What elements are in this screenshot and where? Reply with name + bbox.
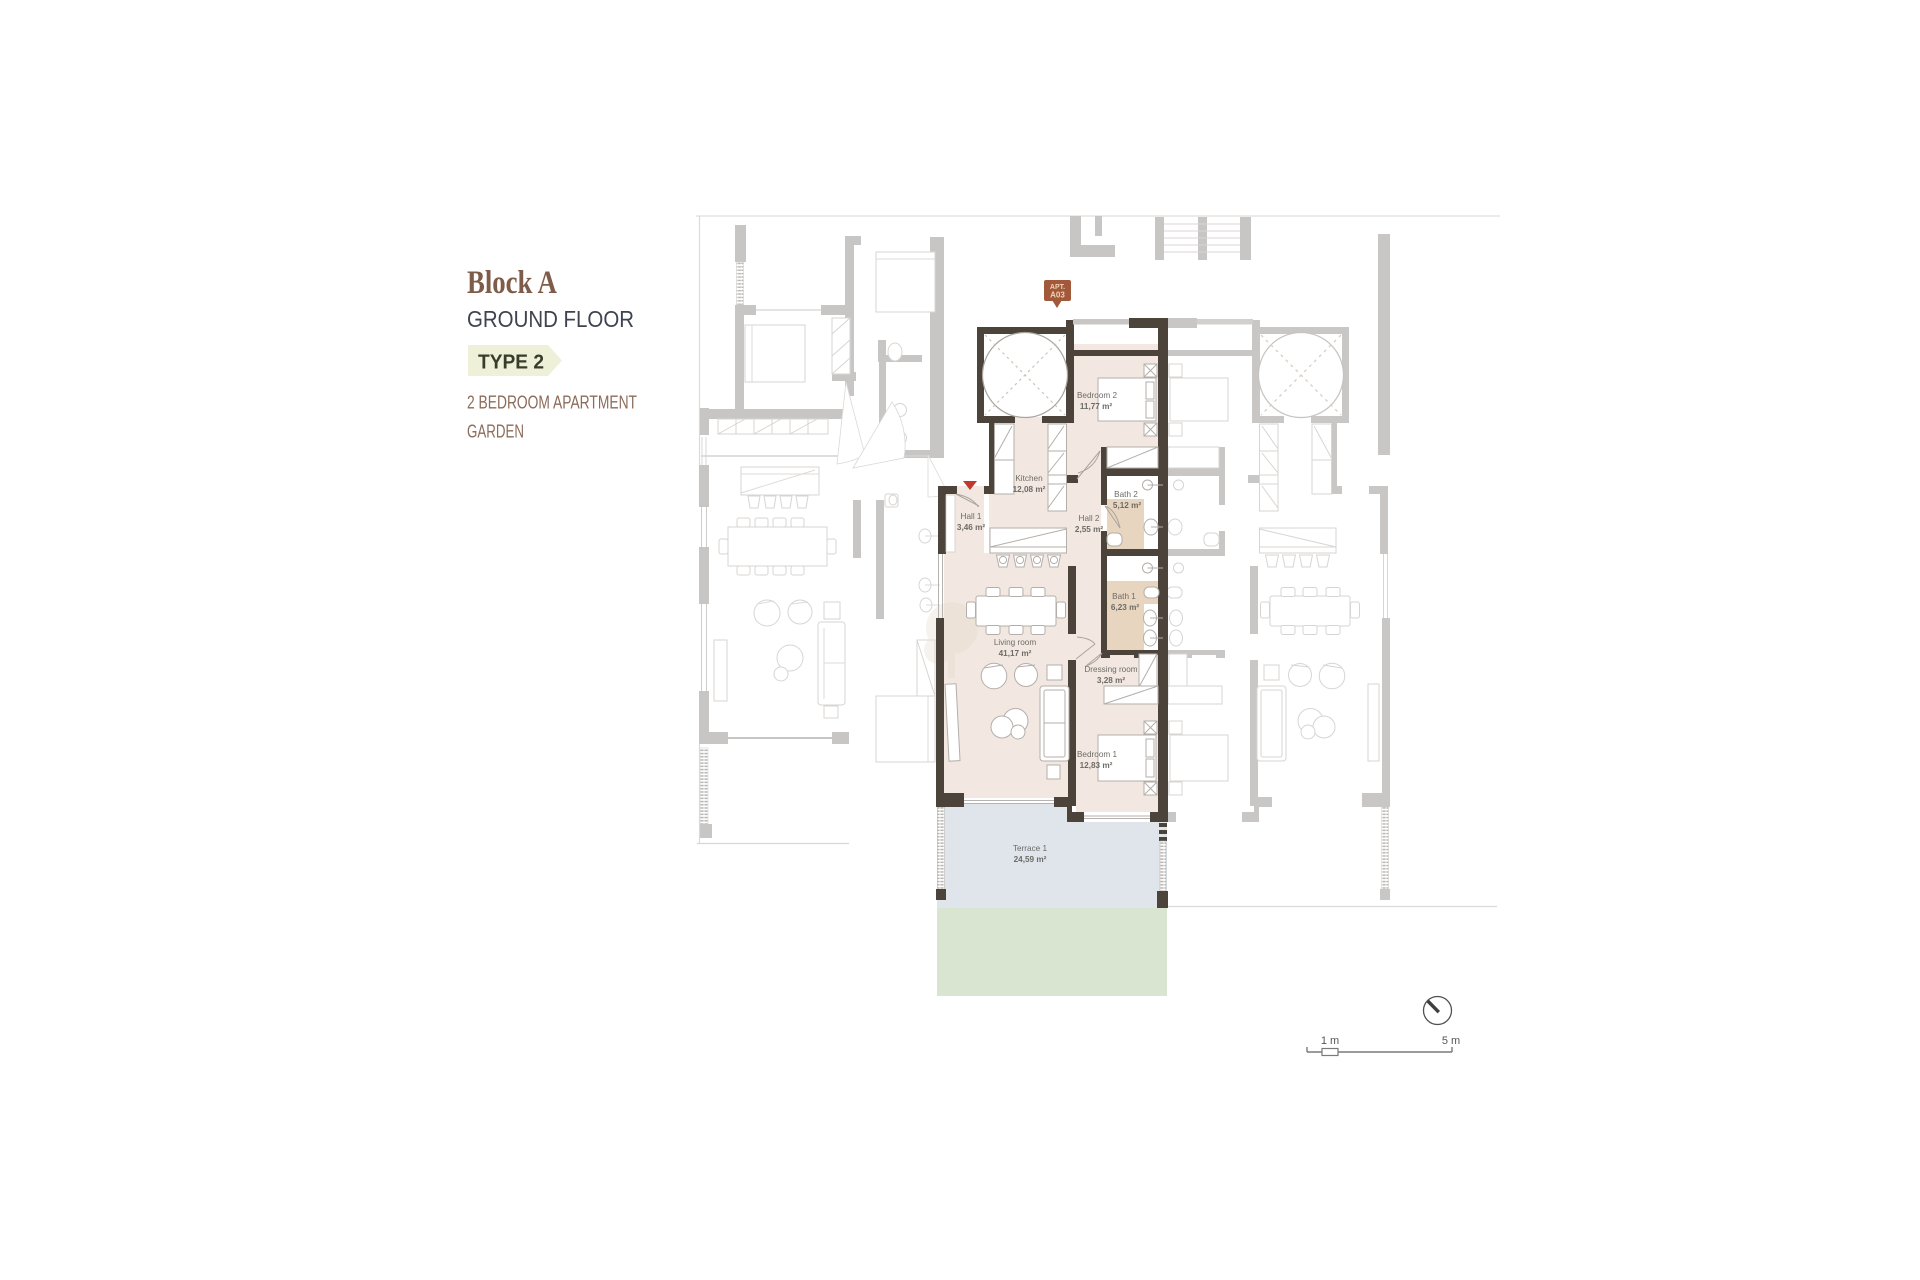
svg-text:Terrace 1: Terrace 1 [1013, 844, 1048, 853]
svg-text:GARDEN: GARDEN [467, 421, 524, 442]
svg-text:5,12 m²: 5,12 m² [1113, 501, 1141, 510]
svg-text:Bedroom 2: Bedroom 2 [1077, 391, 1117, 400]
svg-text:24,59 m²: 24,59 m² [1014, 855, 1047, 864]
svg-text:Block A: Block A [467, 265, 557, 301]
svg-text:6,23 m²: 6,23 m² [1111, 603, 1139, 612]
svg-text:A03: A03 [1050, 291, 1065, 300]
svg-text:2,55 m²: 2,55 m² [1075, 525, 1103, 534]
svg-text:Living room: Living room [994, 638, 1037, 647]
svg-text:5 m: 5 m [1442, 1035, 1460, 1047]
svg-text:Bedroom 1: Bedroom 1 [1077, 750, 1117, 759]
svg-text:12,83 m²: 12,83 m² [1080, 761, 1113, 770]
svg-text:Kitchen: Kitchen [1015, 474, 1043, 483]
svg-text:1 m: 1 m [1321, 1035, 1339, 1047]
svg-text:Hall 2: Hall 2 [1079, 514, 1100, 523]
svg-text:3,28 m²: 3,28 m² [1097, 676, 1125, 685]
svg-text:3,46 m²: 3,46 m² [957, 523, 985, 532]
svg-text:Bath 2: Bath 2 [1114, 490, 1138, 499]
svg-text:Hall 1: Hall 1 [961, 512, 982, 521]
svg-text:12,08 m²: 12,08 m² [1013, 485, 1046, 494]
svg-text:Dressing room: Dressing room [1084, 665, 1137, 674]
svg-text:Bath 1: Bath 1 [1112, 592, 1136, 601]
svg-text:TYPE 2: TYPE 2 [478, 352, 544, 374]
svg-text:41,17 m²: 41,17 m² [999, 649, 1032, 658]
svg-text:GROUND FLOOR: GROUND FLOOR [467, 306, 634, 332]
svg-text:2 BEDROOM APARTMENT: 2 BEDROOM APARTMENT [467, 392, 637, 413]
svg-text:11,77 m²: 11,77 m² [1080, 402, 1113, 411]
